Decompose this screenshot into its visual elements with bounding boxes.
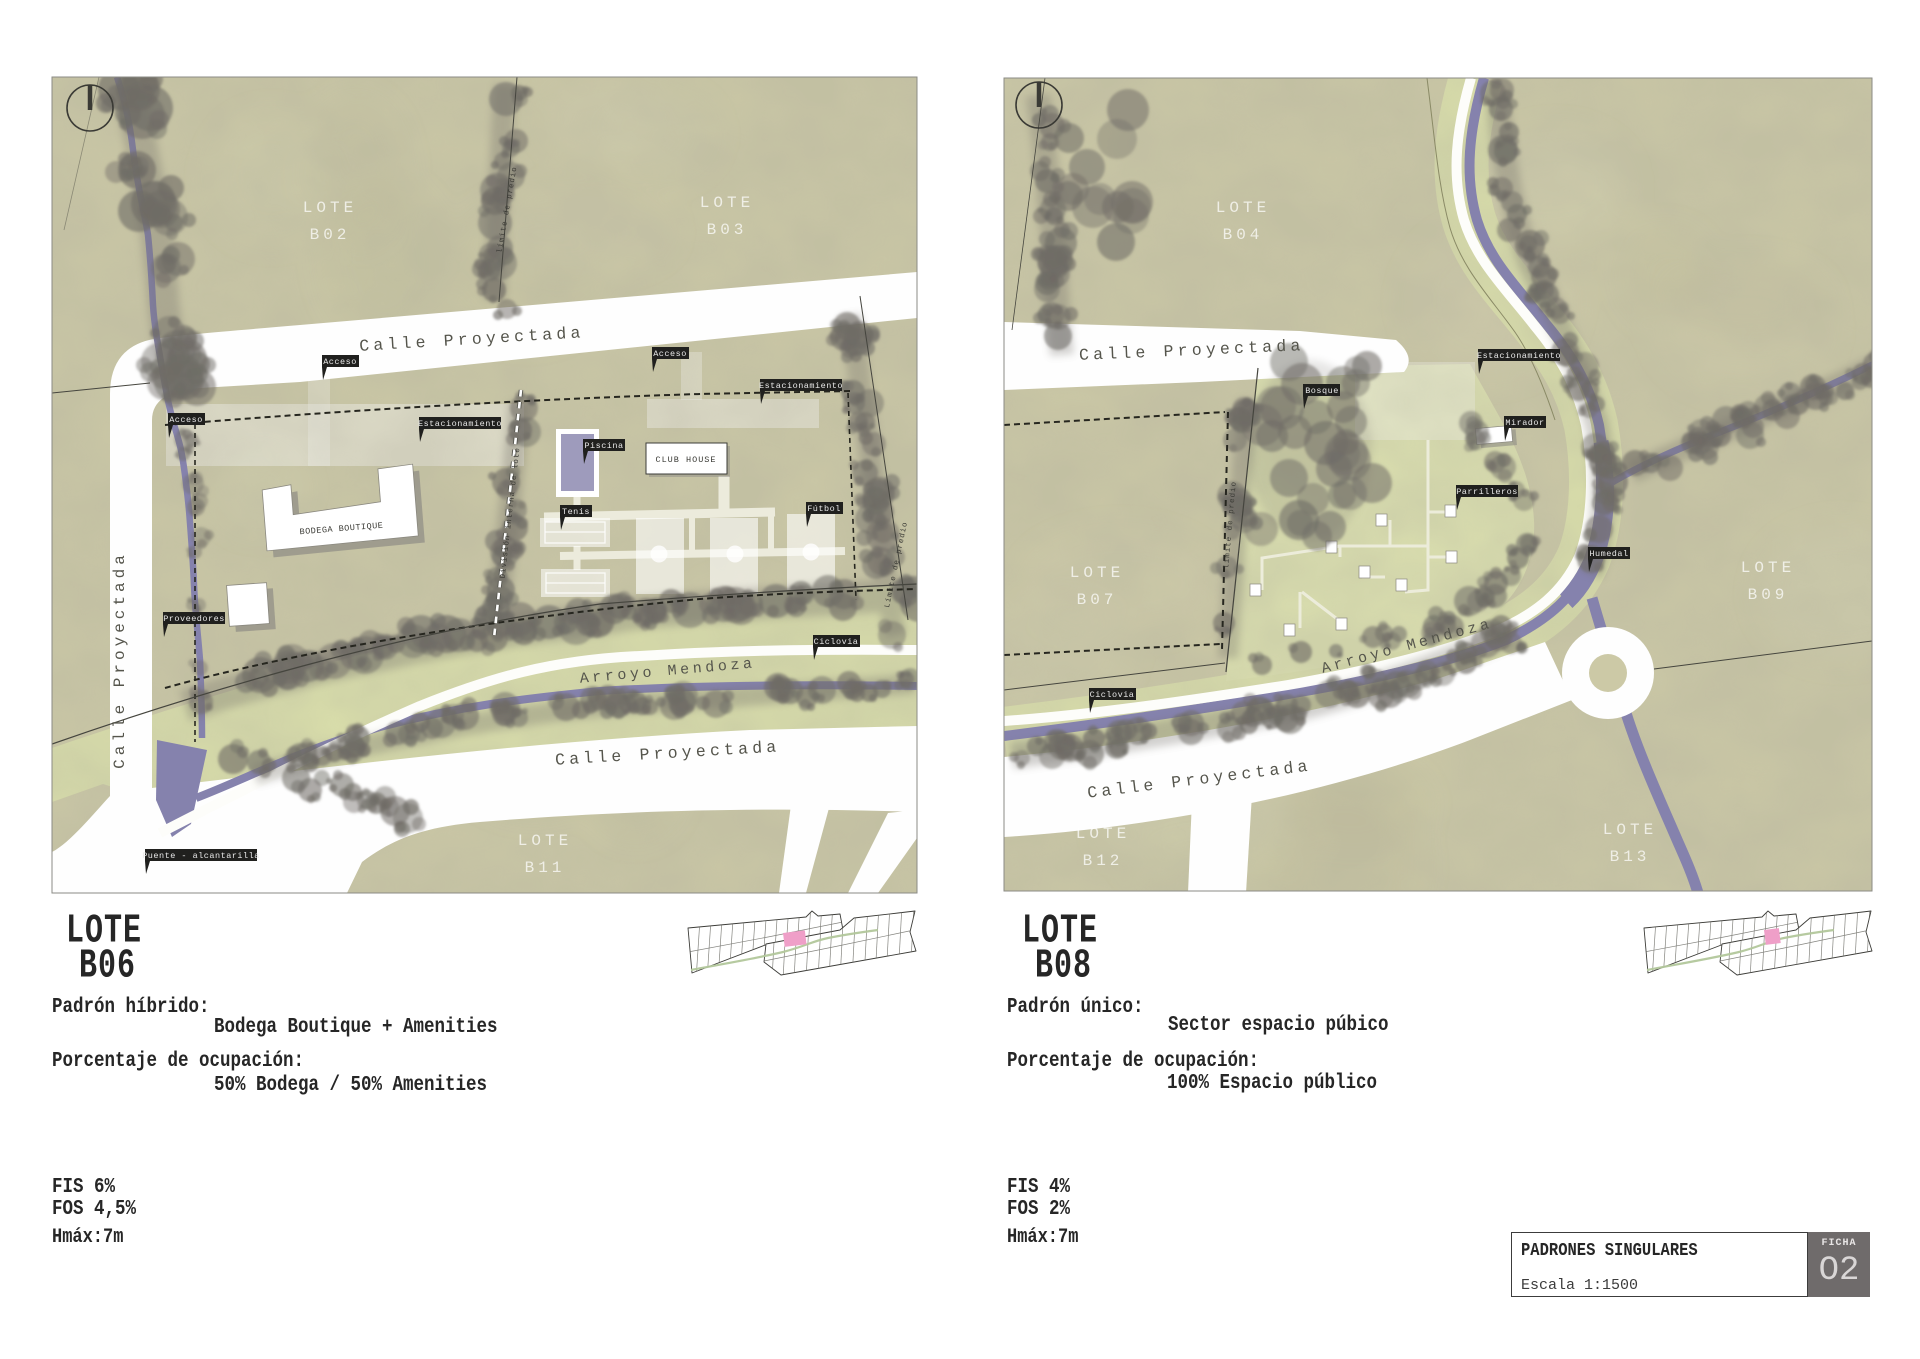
svg-text:LOTE: LOTE — [518, 832, 572, 850]
svg-text:Piscina: Piscina — [584, 441, 623, 451]
svg-text:Ciclovia: Ciclovia — [1090, 690, 1135, 700]
svg-text:Ciclovia: Ciclovia — [814, 637, 859, 647]
svg-text:B07: B07 — [1077, 591, 1118, 609]
svg-text:B04: B04 — [1223, 226, 1264, 244]
svg-text:Acceso: Acceso — [169, 415, 203, 425]
svg-text:Calle Proyectada: Calle Proyectada — [111, 551, 129, 769]
svg-text:B11: B11 — [525, 859, 566, 877]
svg-text:LOTE: LOTE — [303, 199, 357, 217]
svg-text:Estacionamiento: Estacionamiento — [759, 381, 843, 391]
svg-text:Fútbol: Fútbol — [807, 504, 841, 514]
svg-text:CLUB HOUSE: CLUB HOUSE — [655, 455, 716, 465]
svg-text:Tenis: Tenis — [562, 507, 590, 517]
svg-text:Parrilleros: Parrilleros — [1456, 487, 1518, 497]
svg-text:LOTE: LOTE — [700, 194, 754, 212]
svg-text:Puente - alcantarilla: Puente - alcantarilla — [142, 851, 260, 861]
svg-text:LOTE: LOTE — [1603, 821, 1657, 839]
svg-text:Estacionamiento: Estacionamiento — [1477, 351, 1561, 361]
svg-text:B12: B12 — [1083, 852, 1124, 870]
svg-text:Humedal: Humedal — [1589, 549, 1628, 559]
svg-text:LOTE: LOTE — [1741, 559, 1795, 577]
svg-text:Proveedores: Proveedores — [163, 614, 225, 624]
svg-text:B13: B13 — [1610, 848, 1651, 866]
svg-text:Mirador: Mirador — [1505, 418, 1544, 428]
svg-text:Acceso: Acceso — [653, 349, 687, 359]
svg-text:Acceso: Acceso — [323, 357, 357, 367]
svg-text:B09: B09 — [1748, 586, 1789, 604]
svg-text:LOTE: LOTE — [1070, 564, 1124, 582]
svg-text:LOTE: LOTE — [1076, 825, 1130, 843]
svg-text:B03: B03 — [707, 221, 748, 239]
svg-text:LOTE: LOTE — [1216, 199, 1270, 217]
svg-text:Estacionamiento: Estacionamiento — [418, 419, 502, 429]
svg-text:Bosque: Bosque — [1305, 386, 1339, 396]
svg-text:B02: B02 — [310, 226, 351, 244]
